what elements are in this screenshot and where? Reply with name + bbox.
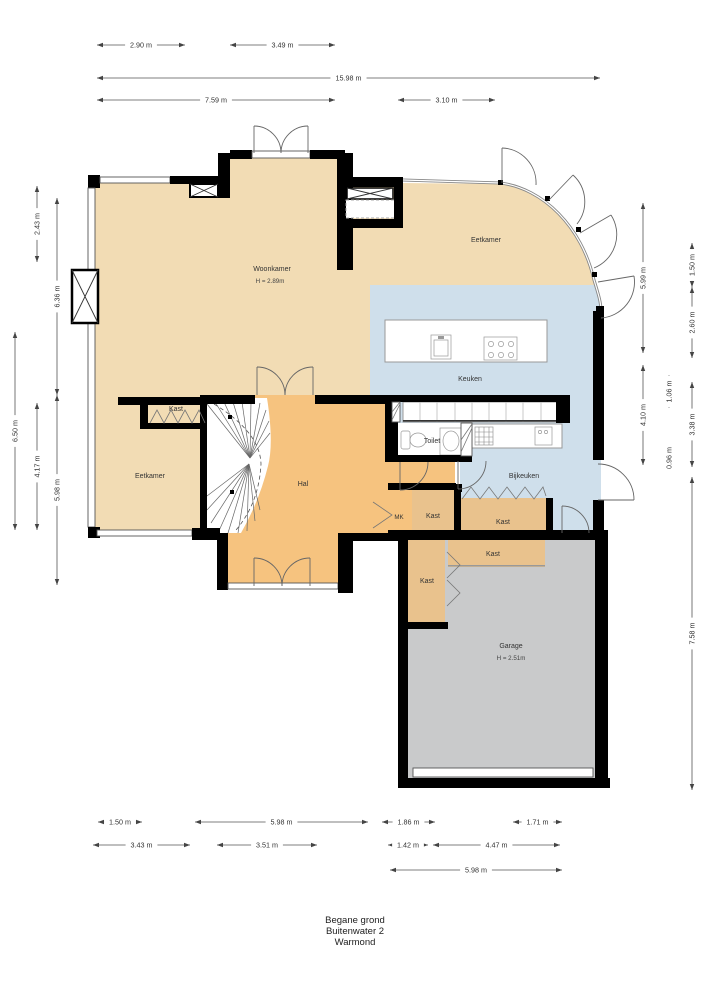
- cabinet-row: [403, 402, 558, 422]
- dim-left-417: 4.17 m: [33, 403, 42, 530]
- dim-bottom-351: 3.51 m: [217, 841, 317, 850]
- label-eetkamer-left: Eetkamer: [135, 473, 166, 480]
- label-hal: Hal: [298, 481, 309, 488]
- kitchen-island: [385, 320, 547, 362]
- label-mk: MK: [394, 514, 404, 521]
- svg-text:2.43 m: 2.43 m: [33, 213, 42, 235]
- dim-left-243: 2.43 m: [33, 186, 42, 262]
- svg-text:5.99 m: 5.99 m: [639, 267, 648, 289]
- svg-text:3.38 m: 3.38 m: [688, 414, 697, 436]
- dim-right-758: 7.58 m: [688, 477, 697, 790]
- dim-bottom-447: 4.47 m: [433, 841, 560, 850]
- dim-bottom-186: 1.86 m: [382, 818, 435, 827]
- svg-text:1.86 m: 1.86 m: [398, 818, 420, 827]
- dim-right-096: 0.96 m: [665, 442, 674, 474]
- floor-plan-page: Woonkamer H = 2.89m Eetkamer Keuken Eetk…: [0, 0, 707, 1000]
- label-bijkeuken: Bijkeuken: [509, 473, 539, 480]
- dim-bottom-171: 1.71 m: [513, 818, 562, 827]
- floor-mk: [388, 490, 412, 533]
- svg-text:6.36 m: 6.36 m: [53, 286, 62, 308]
- svg-text:7.58 m: 7.58 m: [688, 623, 697, 645]
- svg-text:0.96 m: 0.96 m: [665, 447, 674, 469]
- dim-right-150: 1.50 m: [688, 243, 697, 287]
- dim-right-410: 4.10 m: [639, 365, 648, 465]
- svg-text:1.50 m: 1.50 m: [688, 254, 697, 276]
- svg-text:1.50 m: 1.50 m: [109, 818, 131, 827]
- svg-text:3.43 m: 3.43 m: [131, 841, 153, 850]
- dim-right-338: 3.38 m: [688, 382, 697, 467]
- dim-top-759: 7.59 m: [97, 96, 335, 105]
- svg-text:6.50 m: 6.50 m: [11, 420, 20, 442]
- dim-top-290: 2.90 m: [97, 41, 185, 50]
- floor-plan-canvas: Woonkamer H = 2.89m Eetkamer Keuken Eetk…: [0, 0, 707, 1000]
- svg-text:4.47 m: 4.47 m: [486, 841, 508, 850]
- dim-bottom-343: 3.43 m: [93, 841, 190, 850]
- dim-top-310: 3.10 m: [398, 96, 495, 105]
- label-garage-height: H = 2.51m: [497, 655, 526, 662]
- label-woonkamer: Woonkamer: [253, 266, 291, 273]
- svg-text:3.51 m: 3.51 m: [256, 841, 278, 850]
- dim-left-636: 6.36 m: [53, 198, 62, 395]
- dim-left-598: 5.98 m: [53, 395, 62, 585]
- svg-text:1.06 m: 1.06 m: [665, 381, 674, 403]
- utility-counter: [472, 424, 562, 448]
- svg-text:1.71 m: 1.71 m: [527, 818, 549, 827]
- label-kast-bijkeuken: Kast: [496, 519, 510, 526]
- dim-top-349: 3.49 m: [230, 41, 335, 50]
- dim-right-260: 2.60 m: [688, 287, 697, 358]
- label-kast-vestibule: Kast: [426, 513, 440, 520]
- svg-text:7.59 m: 7.59 m: [205, 96, 227, 105]
- svg-text:4.10 m: 4.10 m: [639, 404, 648, 426]
- floor-eetkamer-left: [95, 395, 207, 533]
- label-keuken: Keuken: [458, 376, 482, 383]
- label-kast-garage-top: Kast: [486, 551, 500, 558]
- dim-bottom-150: 1.50 m: [98, 818, 142, 827]
- dim-bottom-598b: 5.98 m: [390, 866, 562, 875]
- svg-text:4.17 m: 4.17 m: [33, 456, 42, 478]
- svg-text:15.98 m: 15.98 m: [336, 74, 362, 83]
- svg-text:5.98 m: 5.98 m: [271, 818, 293, 827]
- title-address: Buitenwater 2: [326, 926, 384, 937]
- label-eetkamer-top: Eetkamer: [471, 237, 502, 244]
- dim-bottom-142: 1.42 m: [388, 841, 428, 850]
- dim-right-599: 5.99 m: [639, 203, 648, 353]
- dim-top-1598: 15.98 m: [97, 74, 600, 83]
- svg-text:2.90 m: 2.90 m: [130, 41, 152, 50]
- label-toilet: Toilet: [424, 438, 440, 445]
- svg-text:3.10 m: 3.10 m: [436, 96, 458, 105]
- title-floor: Begane grond: [325, 915, 385, 926]
- label-woonkamer-height: H = 2.89m: [256, 278, 285, 285]
- svg-text:2.60 m: 2.60 m: [688, 312, 697, 334]
- svg-text:5.98 m: 5.98 m: [465, 866, 487, 875]
- garage-door: [413, 768, 593, 777]
- svg-text:3.49 m: 3.49 m: [272, 41, 294, 50]
- svg-text:5.98 m: 5.98 m: [53, 479, 62, 501]
- plan-title: Begane grond Buitenwater 2 Warmond: [325, 915, 385, 948]
- dim-bottom-598a: 5.98 m: [195, 818, 368, 827]
- dim-right-106: 1.06 m: [665, 375, 674, 408]
- label-kast-garage-left: Kast: [420, 578, 434, 585]
- label-kast-eetkamer: Kast: [169, 406, 183, 413]
- svg-text:1.42 m: 1.42 m: [397, 841, 419, 850]
- title-city: Warmond: [335, 937, 376, 948]
- label-garage: Garage: [499, 643, 522, 650]
- dim-left-650: 6.50 m: [11, 332, 20, 530]
- floor-kast-vestibule: [412, 490, 458, 533]
